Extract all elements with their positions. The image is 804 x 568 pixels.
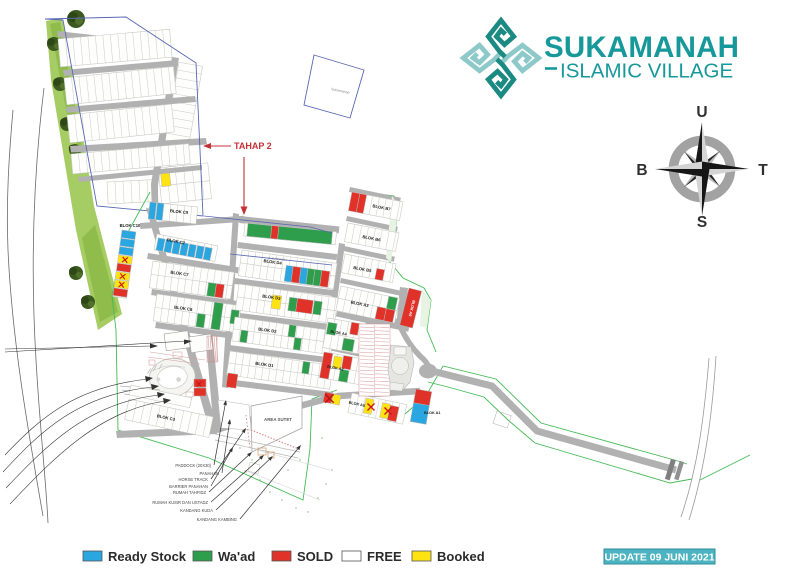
svg-text:SOLD: SOLD <box>297 549 333 564</box>
svg-text:HORSE TRACK: HORSE TRACK <box>179 477 209 482</box>
svg-text:BARRIER PANAHAN: BARRIER PANAHAN <box>169 484 208 489</box>
svg-text:KANDANG KAMBING: KANDANG KAMBING <box>197 517 237 522</box>
svg-text:T: T <box>758 162 768 179</box>
svg-text:Booked: Booked <box>437 549 485 564</box>
svg-text:FREE: FREE <box>367 549 402 564</box>
svg-text:S: S <box>697 214 707 231</box>
svg-text:AREA SUTET: AREA SUTET <box>264 417 292 422</box>
svg-text:Wa'ad: Wa'ad <box>218 549 255 564</box>
svg-text:RUMAH TAHFIDZ: RUMAH TAHFIDZ <box>173 490 207 495</box>
svg-text:PADDOCK (20X30): PADDOCK (20X30) <box>175 463 211 468</box>
svg-text:UPDATE 09 JUNI 2021: UPDATE 09 JUNI 2021 <box>604 552 714 564</box>
svg-text:BLOK C10: BLOK C10 <box>120 223 141 228</box>
svg-text:RUMAH KUSIR DAN USTADZ: RUMAH KUSIR DAN USTADZ <box>152 500 208 505</box>
svg-text:KANDANG KUDA: KANDANG KUDA <box>180 508 213 513</box>
svg-text:U: U <box>696 104 707 121</box>
svg-text:B: B <box>636 162 647 179</box>
svg-text:Ready Stock: Ready Stock <box>108 549 187 564</box>
svg-text:ISLAMIC VILLAGE: ISLAMIC VILLAGE <box>560 60 733 83</box>
svg-text:BLOK A1: BLOK A1 <box>424 411 441 415</box>
svg-text:TAHAP 2: TAHAP 2 <box>234 141 272 151</box>
